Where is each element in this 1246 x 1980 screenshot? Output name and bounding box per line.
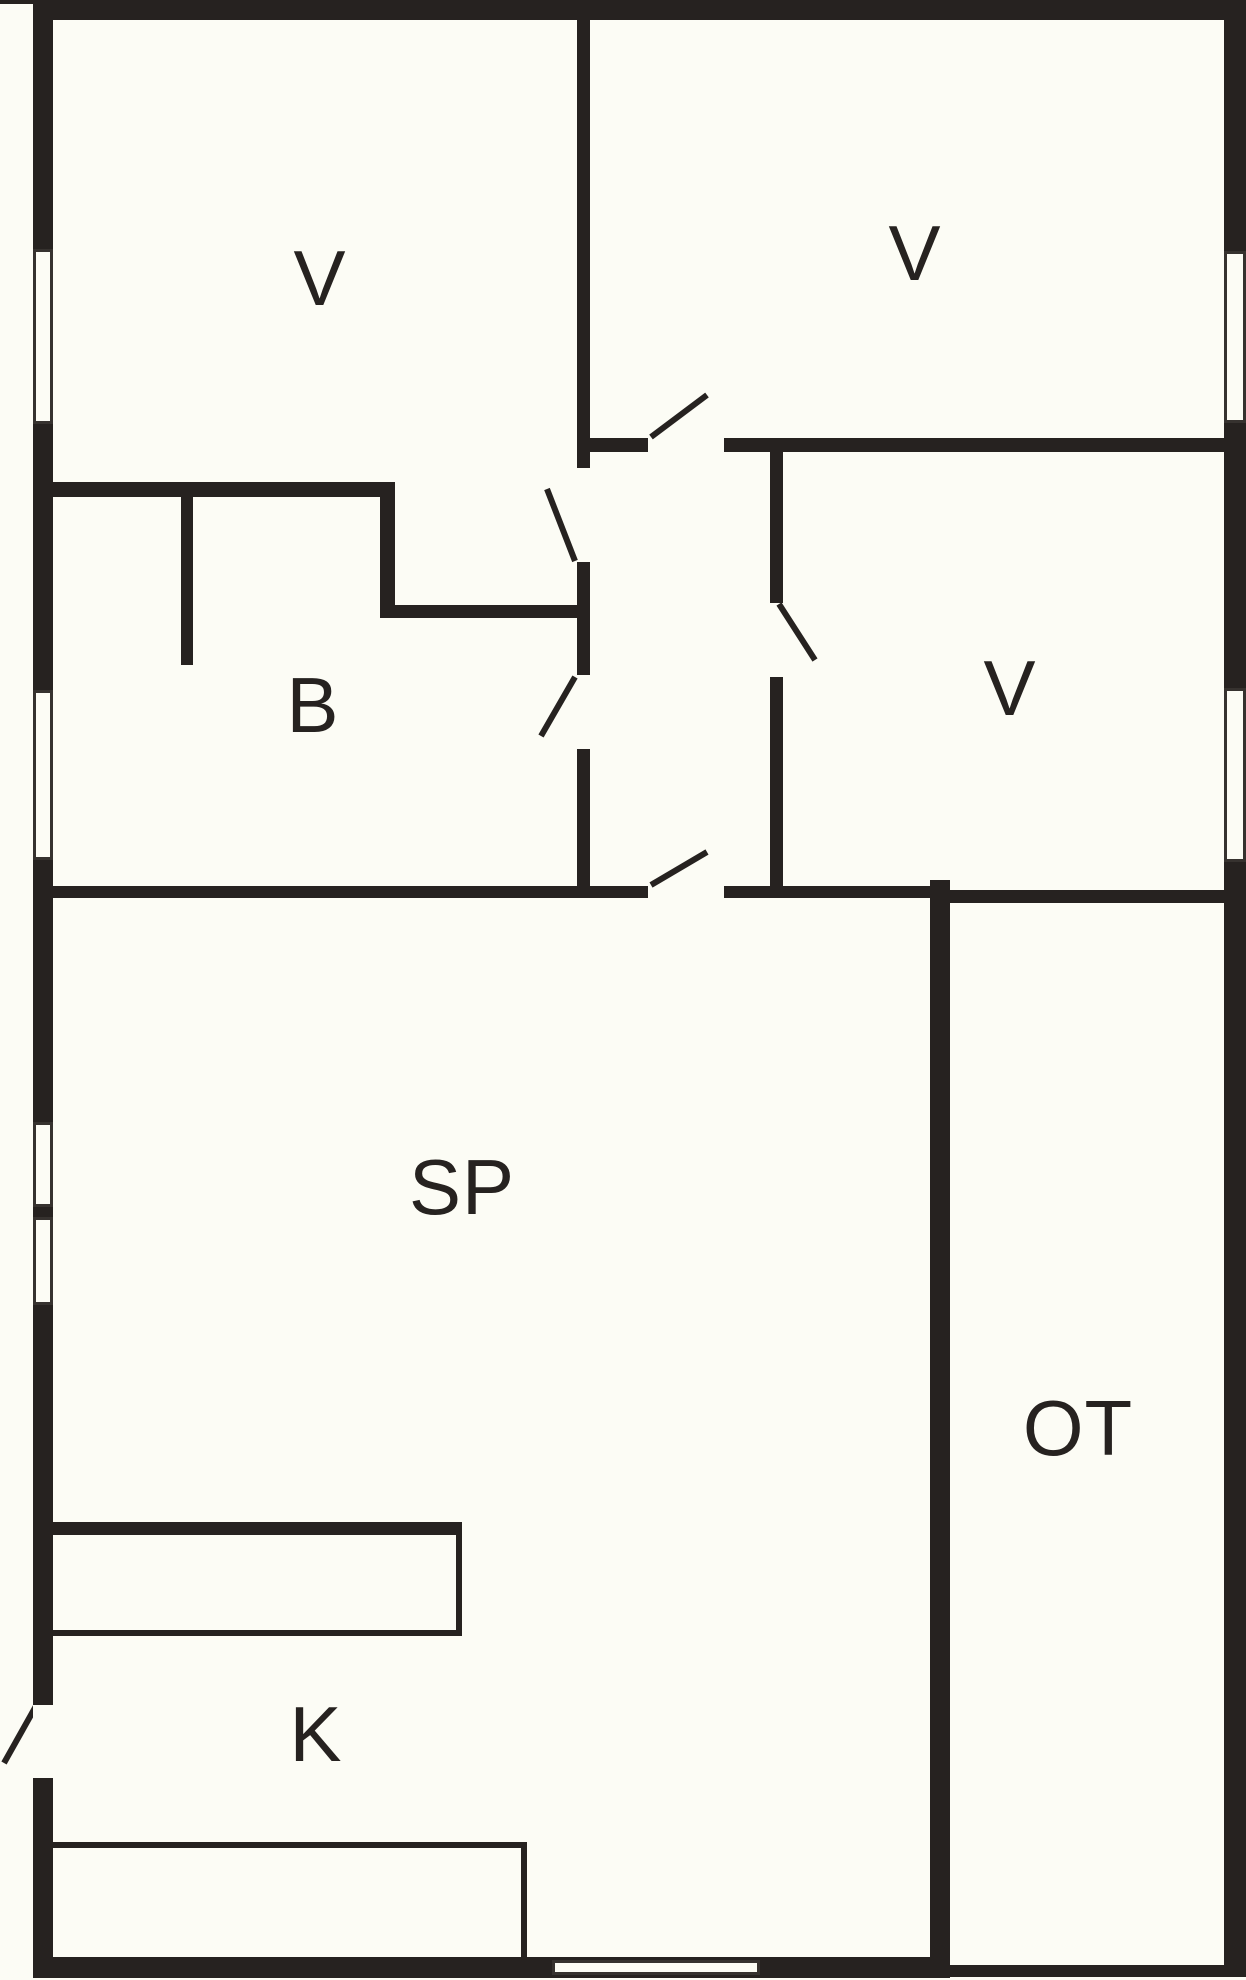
bedrooms-divider-left: [590, 438, 648, 452]
bedroom-1-door-leaf: [547, 489, 575, 561]
kitchen-counter-bottom-back: [53, 1842, 527, 1848]
door-swing-layer: [0, 0, 1246, 1980]
kitchen-counter-top-back: [53, 1522, 462, 1535]
bedroom-2-door-leaf: [651, 395, 707, 437]
kitchen-counter-bottom-right: [521, 1848, 527, 1957]
window-left-bedroom-1: [33, 249, 53, 424]
exterior-top: [33, 0, 1246, 20]
hall-right-wall-upper: [770, 452, 783, 603]
room-label-bedroom-mid-right: V: [983, 649, 1036, 727]
bathroom-door-leaf: [541, 677, 575, 736]
room-label-living-room: SP: [409, 1148, 515, 1226]
exterior-top-left-tick: [0, 0, 33, 4]
window-left-living-2: [33, 1217, 53, 1305]
room-label-bedroom-top-right: V: [888, 214, 941, 292]
terrace-top-wall: [950, 890, 1224, 903]
kitchen-counter-top-front: [53, 1630, 462, 1636]
living-room-door-leaf: [651, 852, 707, 885]
floor-plan-canvas: VVBVSPOTK: [0, 0, 1246, 1980]
bedroom-3-door-leaf: [779, 604, 815, 660]
bathroom-corner-vertical: [380, 497, 395, 618]
bathroom-stub: [181, 497, 193, 665]
window-bottom-living: [552, 1960, 760, 1975]
living-top-wall-right: [724, 886, 930, 898]
room-label-bathroom: B: [286, 666, 339, 744]
bathroom-top-wall: [53, 482, 395, 497]
divider-vertical-mid: [577, 562, 590, 675]
room-label-terrace: OT: [1023, 1389, 1133, 1467]
room-label-bedroom-top-left: V: [293, 239, 346, 317]
divider-vertical-top: [577, 20, 590, 468]
hall-right-wall-lower: [770, 677, 783, 886]
window-left-living-1: [33, 1122, 53, 1207]
window-left-bathroom: [33, 690, 53, 860]
window-right-bedroom-2: [1224, 251, 1246, 423]
bedrooms-divider-right: [724, 438, 1224, 452]
terrace-left-wall: [930, 880, 950, 1978]
alcove-bottom-wall: [395, 605, 588, 618]
exterior-bottom-main: [33, 1957, 950, 1978]
room-label-kitchen: K: [289, 1695, 342, 1773]
entry-door-leaf: [4, 1706, 36, 1763]
window-right-bedroom-3: [1224, 688, 1246, 862]
divider-vertical-low: [577, 749, 590, 886]
entry-door-opening: [33, 1705, 53, 1778]
exterior-bottom-terrace: [950, 1965, 1246, 1977]
kitchen-counter-top-right: [456, 1535, 462, 1635]
living-top-wall-left: [53, 886, 648, 898]
